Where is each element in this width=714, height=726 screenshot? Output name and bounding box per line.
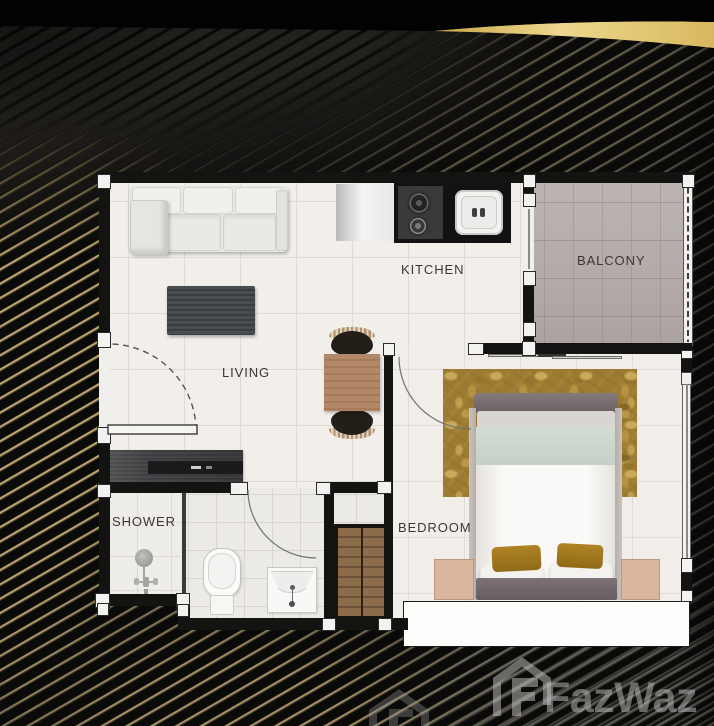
svg-text:FazWaz: FazWaz [544, 674, 697, 722]
